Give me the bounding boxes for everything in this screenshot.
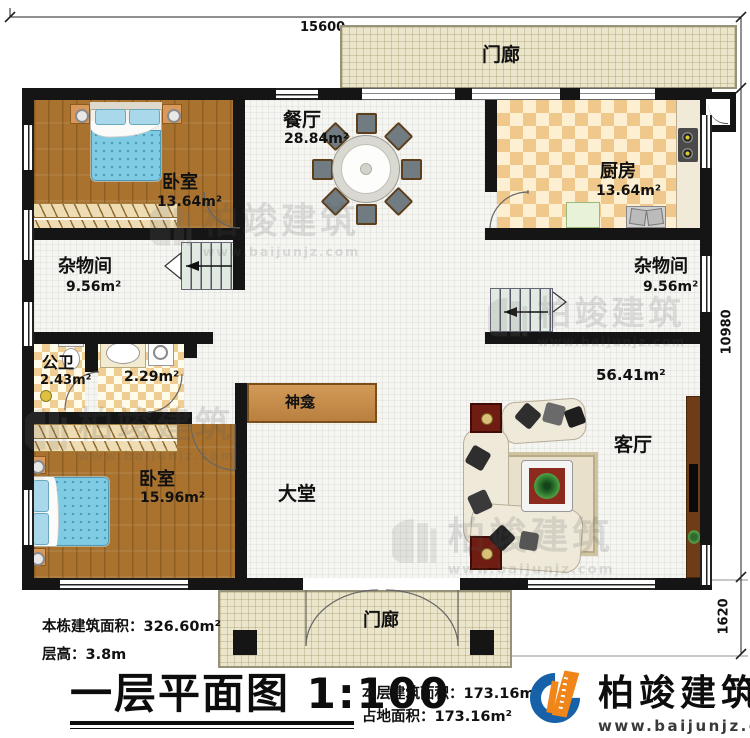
room-label-bedroom-top: 卧室 (162, 174, 198, 193)
room-area-bathroom: 2.43m² (40, 374, 91, 388)
tv-icon (689, 464, 698, 512)
building-area-value: 326.60m² (144, 619, 221, 635)
brand-name: 柏竣建筑 (598, 664, 750, 716)
title-underline-thin (70, 728, 354, 729)
pillow (129, 109, 160, 125)
sink-basin (629, 208, 647, 226)
washer-door-icon (153, 345, 168, 360)
room-label-porch-bottom: 门廊 (363, 612, 399, 631)
room-label-living: 客厅 (614, 436, 652, 456)
room-label-bedroom-bottom: 卧室 (139, 471, 175, 490)
plant-icon (688, 530, 700, 544)
window (700, 115, 712, 168)
throw-pillow (519, 531, 540, 552)
porch-top (340, 25, 737, 89)
room-label-storage-left: 杂物间 (58, 258, 112, 277)
title-underline (70, 721, 354, 725)
room-label-storage-right: 杂物间 (634, 258, 688, 277)
dining-chair (356, 204, 377, 225)
sliding-door (472, 88, 560, 100)
dining-chair (356, 113, 377, 134)
floor-plan-canvas: 15600 10980 1620 门廊 餐厅 28.84m² 厨房 13.64m… (0, 0, 750, 738)
page-title-text: 一层平面图 (70, 669, 290, 718)
dining-chair (401, 159, 422, 180)
wardrobe (28, 203, 178, 230)
room-label-shrine: 神龛 (285, 395, 315, 411)
room-label-bathroom: 公卫 (42, 355, 74, 372)
wall-bedroom-top-right (233, 100, 245, 290)
wardrobe (28, 424, 178, 452)
table-lamp-icon (481, 413, 493, 425)
pillow (33, 513, 49, 545)
room-label-dining: 餐厅 (283, 111, 321, 131)
wall-shrine (235, 383, 247, 578)
room-area-storage-right: 9.56m² (643, 280, 698, 295)
window (22, 125, 34, 170)
pillow (33, 480, 49, 512)
wall-bedroom-bottom-top (22, 412, 192, 424)
brand-logo-icon (528, 669, 590, 731)
footprint-label: 占地面积： (362, 709, 435, 725)
bed-blanket (91, 130, 161, 181)
wall-kitchen-bottom (485, 228, 712, 240)
dining-chair (312, 159, 333, 180)
floor-height-label: 层高： (42, 647, 86, 663)
floor-height-note: 层高：3.8m (42, 648, 126, 663)
building-area-label: 本栋建筑面积： (42, 619, 144, 635)
room-label-porch-top: 门廊 (482, 46, 520, 66)
stairs-left (181, 242, 240, 290)
plant-icon (534, 473, 560, 499)
nightstand (162, 104, 182, 124)
wall-storage-right-bottom (485, 332, 712, 344)
window (60, 578, 188, 590)
sliding-door (580, 88, 655, 100)
dining-table-hub (360, 163, 372, 175)
lamp-icon (167, 109, 181, 123)
window (528, 578, 655, 590)
porch-column (233, 630, 257, 655)
room-area-kitchen: 13.64m² (596, 184, 661, 199)
footprint-value: 173.16m² (435, 709, 512, 725)
pillow (95, 109, 126, 125)
kitchen-counter (676, 100, 701, 228)
wardrobe-rail (29, 217, 177, 220)
window (700, 545, 712, 585)
floor-area-label: 本层建筑面积： (362, 686, 464, 702)
brand-url: www.baijunjz.com (598, 717, 750, 735)
dimension-right-main: 10980 (720, 313, 735, 355)
table-lamp-icon (481, 548, 493, 560)
room-area-dining: 28.84m² (284, 132, 349, 147)
room-area-bedroom-top: 13.64m² (157, 195, 222, 210)
building-area-note: 本栋建筑面积：326.60m² (42, 620, 221, 635)
floor-area-note: 本层建筑面积：173.16m² (362, 687, 541, 702)
lamp-icon (75, 109, 89, 123)
floor-height-value: 3.8m (86, 647, 127, 663)
footprint-note: 占地面积：173.16m² (362, 710, 512, 725)
room-area-living: 56.41m² (596, 368, 666, 384)
room-label-kitchen: 厨房 (600, 163, 636, 182)
porch-column (470, 630, 494, 655)
dimension-right-porch: 1620 (717, 601, 732, 635)
burner-icon (682, 148, 693, 159)
bed-blanket (52, 477, 109, 546)
stairs-right (490, 288, 553, 332)
wardrobe-rail (29, 438, 177, 441)
room-area-bedroom-bottom: 15.96m² (140, 491, 205, 506)
window (22, 210, 34, 260)
floor-drain-icon (40, 390, 52, 402)
room-area-storage-left: 9.56m² (66, 280, 121, 295)
window (276, 88, 318, 100)
wall-bedroom-top-bottom (22, 228, 245, 240)
room-label-hall: 大堂 (278, 485, 316, 505)
main-door-opening (303, 578, 460, 590)
wash-basin (106, 342, 140, 364)
window (22, 302, 34, 346)
nightstand (70, 104, 90, 124)
burner-icon (682, 132, 693, 143)
sliding-door (362, 88, 455, 100)
window (22, 490, 34, 545)
sink-basin (646, 208, 664, 226)
wall-stub (184, 332, 197, 358)
dimension-top: 15600 (300, 20, 345, 35)
room-area-washroom: 2.29m² (124, 370, 179, 385)
window (700, 256, 712, 312)
wall-kitchen-left (485, 100, 497, 192)
wall-bath-divider (85, 344, 98, 372)
brand-logo: 柏竣建筑 www.baijunjz.com (528, 664, 750, 735)
cutting-board (566, 202, 600, 228)
